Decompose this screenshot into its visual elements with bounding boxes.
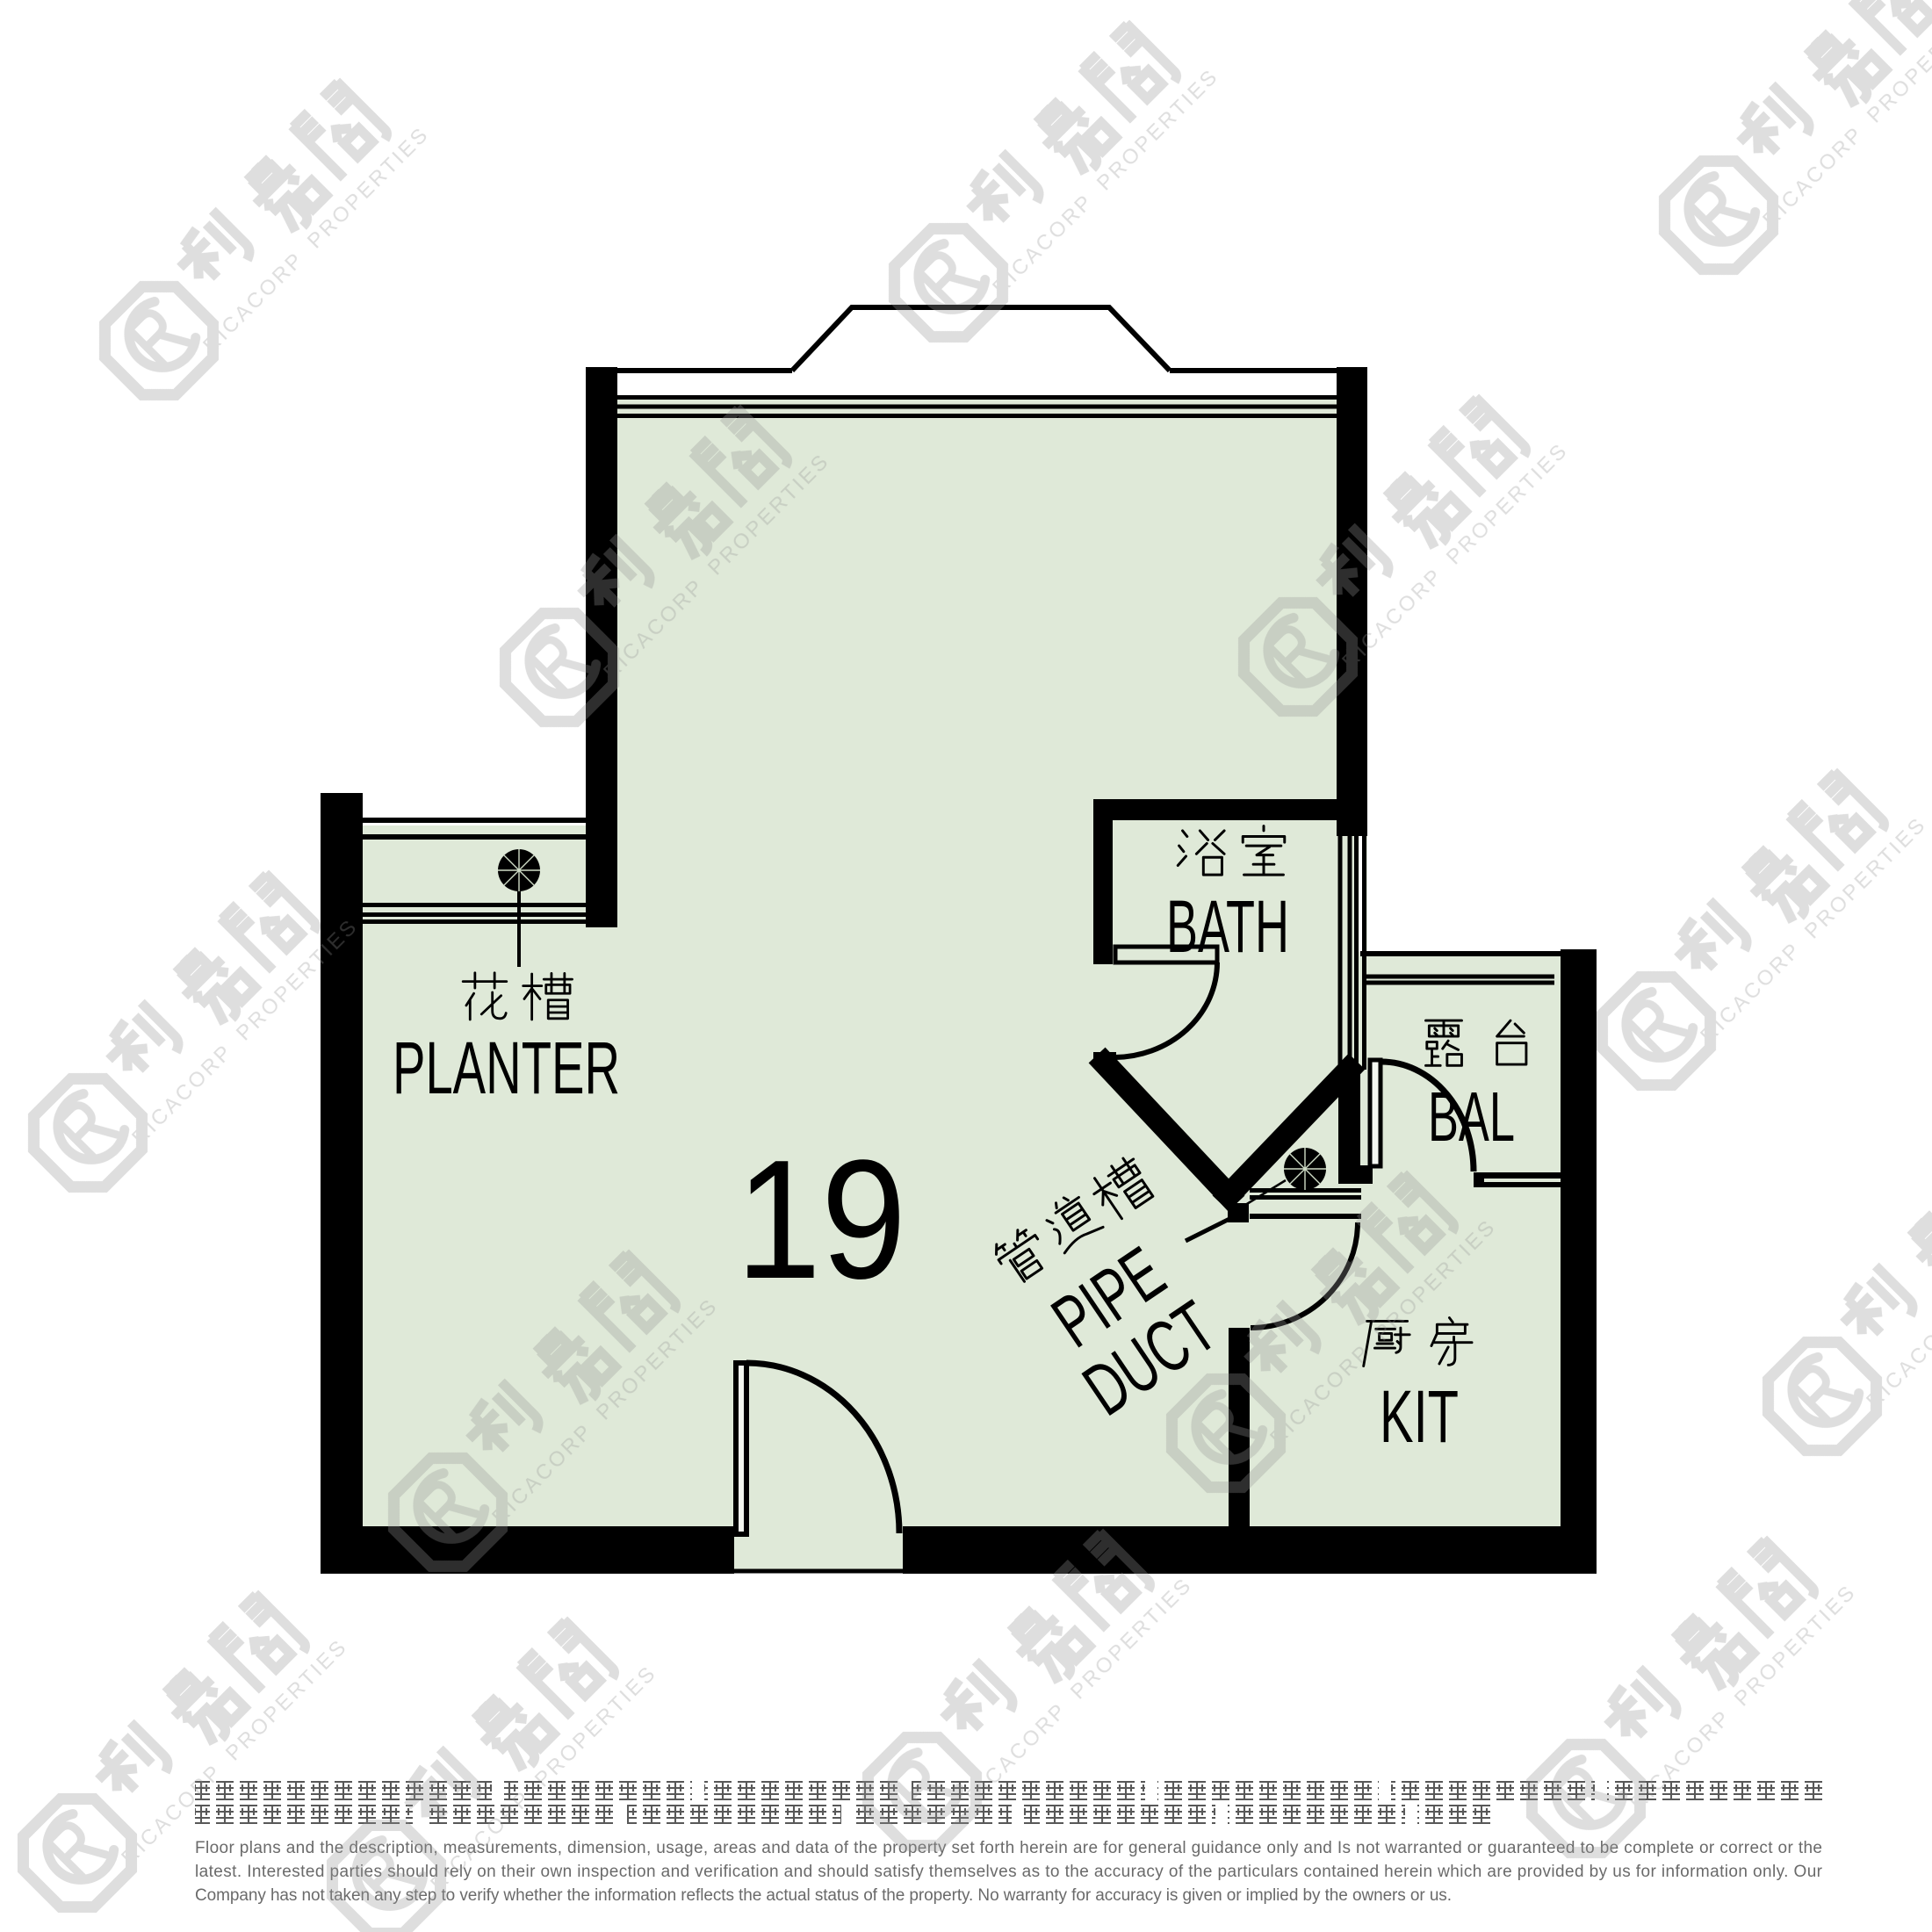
svg-text:BAL: BAL [1428, 1078, 1515, 1156]
svg-text:BATH: BATH [1166, 885, 1289, 968]
svg-text:PLANTER: PLANTER [393, 1027, 620, 1109]
svg-text:19: 19 [736, 1124, 906, 1314]
svg-text:KIT: KIT [1380, 1375, 1459, 1458]
